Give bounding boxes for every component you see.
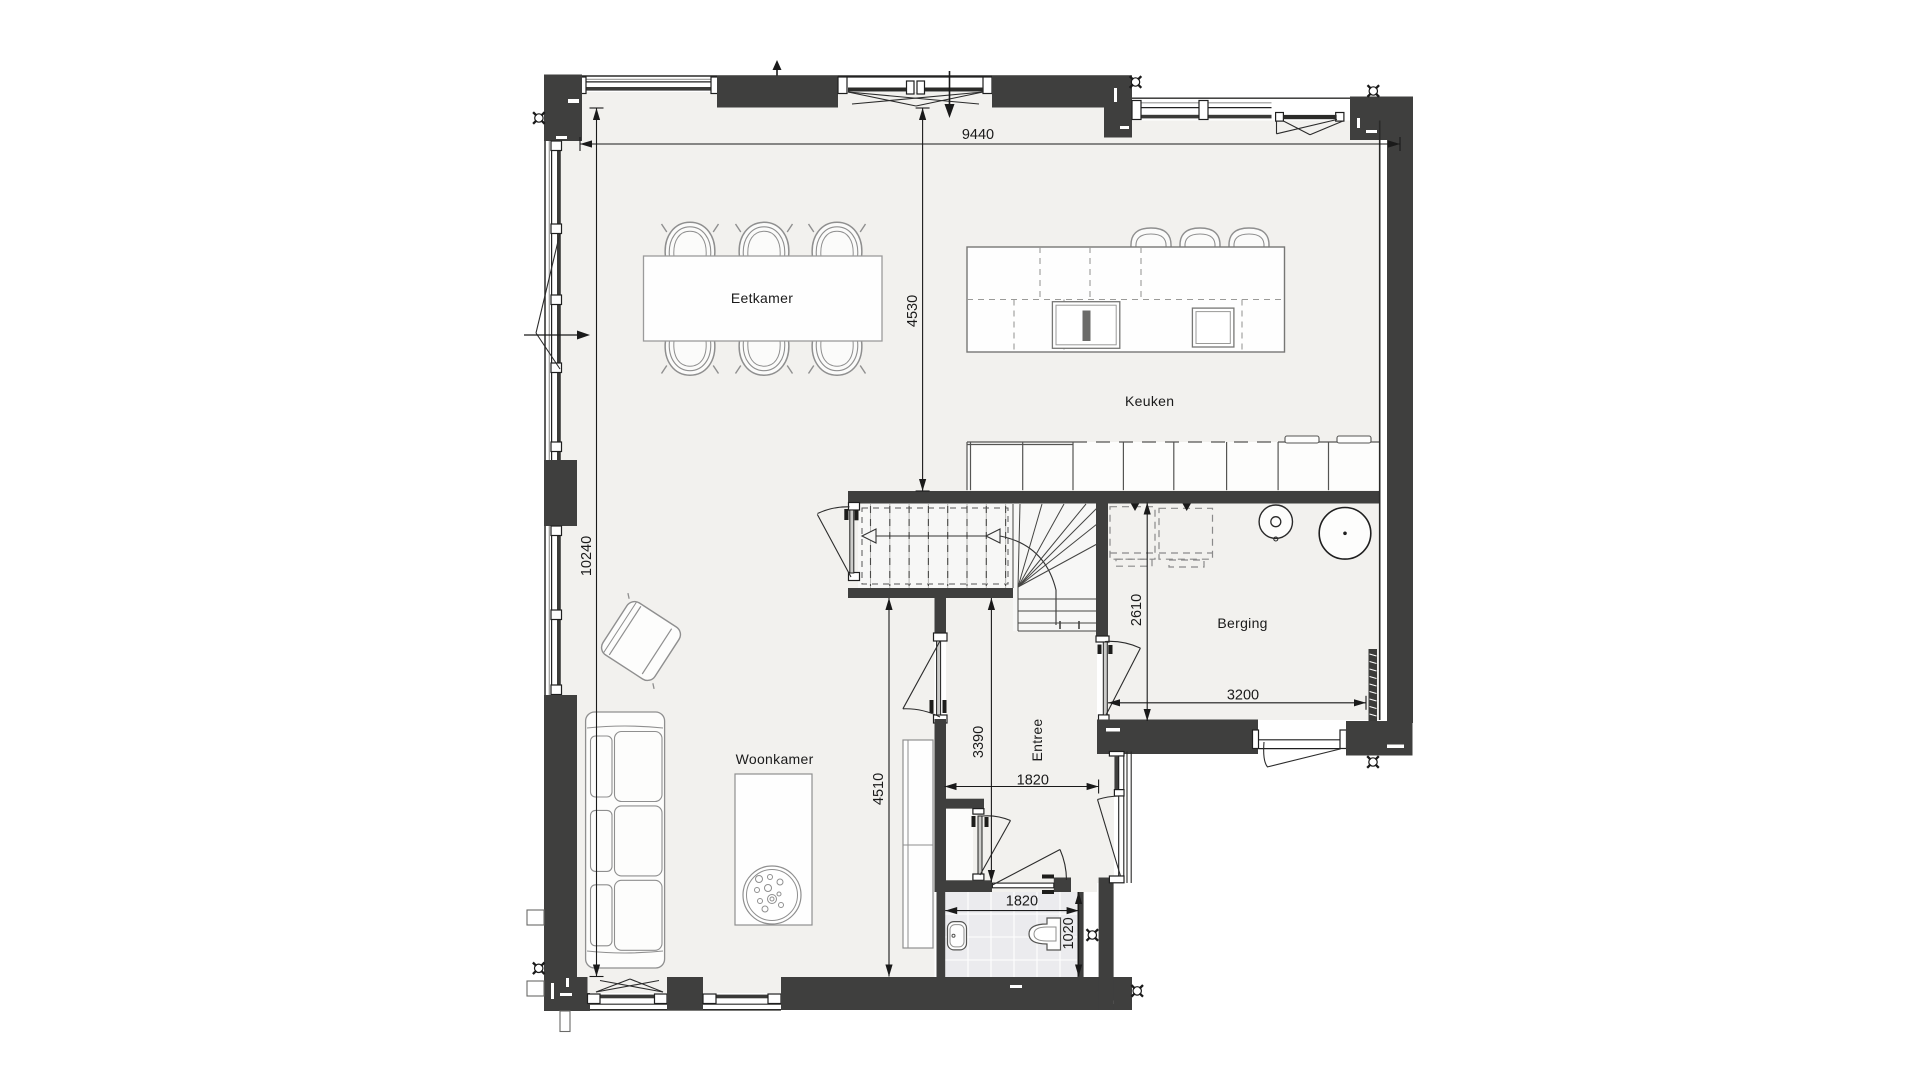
svg-text:9440: 9440	[962, 127, 994, 143]
svg-text:Berging: Berging	[1217, 615, 1267, 631]
svg-text:3390: 3390	[971, 726, 987, 758]
svg-text:4510: 4510	[871, 773, 887, 805]
svg-text:3200: 3200	[1227, 688, 1259, 704]
svg-text:Keuken: Keuken	[1125, 393, 1174, 409]
svg-text:2610: 2610	[1129, 594, 1145, 626]
svg-text:10240: 10240	[579, 536, 595, 576]
svg-text:4530: 4530	[905, 295, 921, 327]
svg-text:Entree: Entree	[1029, 718, 1045, 761]
svg-text:Woonkamer: Woonkamer	[736, 751, 814, 767]
svg-text:Eetkamer: Eetkamer	[731, 290, 793, 306]
svg-text:1820: 1820	[1006, 894, 1038, 910]
svg-text:1820: 1820	[1017, 773, 1049, 789]
svg-text:1020: 1020	[1061, 917, 1077, 949]
